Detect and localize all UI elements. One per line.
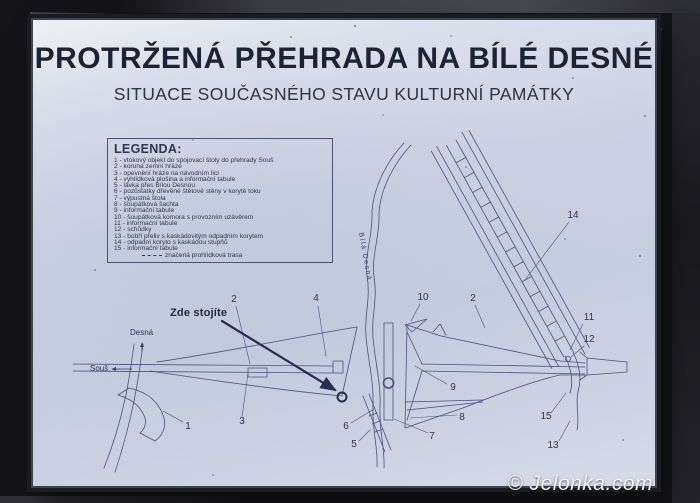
map-point-label-2-15: 2 <box>470 294 476 304</box>
map-point-label-13-12: 13 <box>547 441 558 451</box>
map-point-label-6-5: 6 <box>343 422 349 432</box>
map-point-label-1-0: 1 <box>185 422 191 432</box>
map-point-label-15-14: 15 <box>540 412 551 422</box>
map-point-label-4-3: 4 <box>313 294 319 304</box>
you-are-here-label: Zde stojíte <box>170 307 227 319</box>
direction-label-sous: Souš <box>90 365 108 373</box>
cascade-channel <box>430 129 591 372</box>
direction-label-desna: Desná <box>130 329 153 337</box>
outlet-tunnel <box>384 323 394 420</box>
cascade-outflow <box>565 352 580 430</box>
map-point-label-11-10: 11 <box>584 313 594 323</box>
leader-lines <box>163 222 584 441</box>
map-point-label-7-6: 7 <box>429 432 435 442</box>
footbridge-trail <box>363 394 391 452</box>
access-road <box>104 344 143 472</box>
map-point-label-3-2: 3 <box>239 417 245 427</box>
frame-bottom-highlight <box>0 496 240 503</box>
background-shadow <box>672 0 700 503</box>
left-dam-outline <box>73 327 357 396</box>
map-point-label-14-13: 14 <box>567 211 578 221</box>
map-point-label-12-11: 12 <box>583 335 594 345</box>
site-plan-drawing <box>33 20 655 486</box>
spillway-structure <box>118 388 165 441</box>
map-point-label-8-7: 8 <box>459 413 465 423</box>
watermark: © Jelonka.com <box>507 472 653 496</box>
background-wall-highlight <box>120 0 700 13</box>
board-paper: PROTRŽENÁ PŘEHRADA NA BÍLÉ DESNÉ SITUACE… <box>33 20 655 486</box>
map-point-label-9-8: 9 <box>450 383 456 393</box>
map-point-label-2-1: 2 <box>231 295 237 305</box>
map-point-label-10-9: 10 <box>417 293 428 303</box>
paper-speckles <box>94 25 646 476</box>
photo-of-information-board: PROTRŽENÁ PŘEHRADA NA BÍLÉ DESNÉ SITUACE… <box>0 0 700 503</box>
map-point-label-5-4: 5 <box>351 440 357 450</box>
